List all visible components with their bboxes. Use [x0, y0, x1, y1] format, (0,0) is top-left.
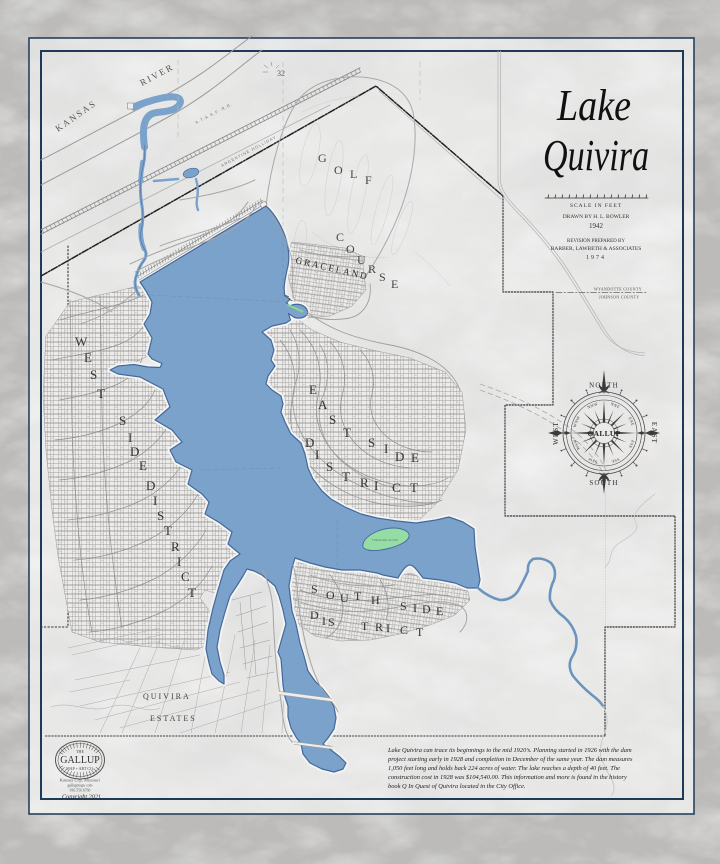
svg-text:O: O [346, 242, 355, 256]
svg-text:F: F [365, 173, 372, 187]
svg-text:E: E [411, 450, 419, 465]
svg-text:GALLUP: GALLUP [587, 429, 620, 438]
svg-text:REVISION PREPARED BY: REVISION PREPARED BY [567, 239, 625, 244]
svg-text:T: T [97, 386, 105, 401]
svg-text:T: T [342, 469, 350, 484]
svg-text:R: R [360, 475, 369, 490]
svg-text:T: T [343, 425, 351, 440]
svg-text:I: I [177, 554, 181, 569]
svg-text:S: S [311, 582, 318, 596]
svg-text:D: D [395, 449, 404, 464]
svg-text:SOUTH: SOUTH [589, 479, 618, 487]
svg-text:I: I [322, 614, 326, 628]
svg-text:C: C [400, 623, 408, 637]
svg-text:BARBER, LAWBETH & ASSOCIATES: BARBER, LAWBETH & ASSOCIATES [551, 246, 642, 252]
svg-text:E: E [309, 382, 317, 397]
svg-text:WEST: WEST [552, 421, 560, 445]
svg-text:S: S [326, 459, 333, 474]
svg-text:R: R [368, 262, 376, 276]
svg-text:32: 32 [277, 69, 285, 78]
svg-text:JOHNSON COUNTY: JOHNSON COUNTY [599, 296, 640, 300]
svg-text:MAP + ART CO.: MAP + ART CO. [66, 766, 94, 771]
svg-text:1,050 feet long and holds back: 1,050 feet long and holds back 224 acres… [388, 765, 620, 772]
svg-text:O: O [334, 163, 343, 177]
svg-text:T: T [354, 589, 362, 603]
svg-text:S: S [328, 615, 335, 629]
svg-text:E: E [84, 350, 92, 365]
svg-text:O: O [326, 588, 335, 602]
svg-text:T: T [410, 480, 418, 495]
svg-text:I: I [413, 601, 417, 615]
svg-text:W: W [75, 334, 88, 349]
svg-text:S: S [329, 412, 336, 427]
svg-text:S: S [119, 413, 126, 428]
svg-text:C: C [181, 569, 190, 584]
svg-text:gallupmaps.com: gallupmaps.com [68, 784, 93, 788]
svg-text:GALLUP: GALLUP [60, 755, 100, 766]
svg-text:U: U [357, 253, 366, 267]
svg-text:I: I [374, 478, 378, 493]
svg-text:I: I [153, 493, 157, 508]
svg-text:H: H [371, 593, 380, 607]
svg-text:E: E [139, 458, 147, 473]
svg-text:Lake: Lake [556, 81, 631, 130]
svg-text:QUIVIRA: QUIVIRA [143, 692, 191, 701]
svg-text:T: T [361, 619, 369, 633]
svg-text:S: S [90, 367, 97, 382]
svg-text:S: S [157, 508, 164, 523]
svg-text:project starting early in 1928: project starting early in 1928 and compl… [387, 756, 633, 763]
svg-text:1942: 1942 [589, 222, 604, 230]
svg-text:C: C [392, 480, 401, 495]
svg-text:I: I [128, 430, 132, 445]
svg-text:S: S [400, 599, 407, 613]
svg-text:construction cost in 1928 was: construction cost in 1928 was $104,540.0… [388, 774, 627, 781]
svg-text:DRAWN BY H. L. BOWLER: DRAWN BY H. L. BOWLER [563, 214, 630, 220]
svg-text:D: D [305, 435, 314, 450]
svg-text:I: I [315, 447, 319, 462]
svg-text:U: U [340, 591, 349, 605]
svg-text:816.556.6760: 816.556.6760 [70, 789, 91, 793]
svg-text:1974: 1974 [586, 255, 606, 261]
svg-text:WYANDOTTE COUNTY: WYANDOTTE COUNTY [594, 288, 642, 292]
svg-text:I: I [386, 621, 390, 635]
svg-text:Quivira: Quivira [543, 131, 649, 180]
svg-text:E: E [436, 604, 443, 618]
svg-text:R: R [375, 620, 383, 634]
svg-text:G: G [318, 151, 327, 165]
svg-text:D: D [130, 444, 139, 459]
svg-text:NORTH: NORTH [589, 382, 619, 390]
svg-text:C: C [336, 230, 344, 244]
svg-text:EAST: EAST [650, 422, 658, 444]
svg-text:Copyright 2021: Copyright 2021 [62, 794, 101, 801]
svg-text:T: T [416, 625, 424, 639]
svg-text:D: D [310, 608, 319, 622]
svg-text:T: T [188, 585, 196, 600]
svg-text:S: S [368, 435, 375, 450]
svg-text:T: T [164, 523, 172, 538]
svg-text:Lake Quivira can trace its beg: Lake Quivira can trace its beginnings to… [387, 747, 632, 754]
svg-text:THE: THE [76, 749, 84, 754]
svg-text:D: D [146, 478, 155, 493]
svg-text:D: D [422, 602, 431, 616]
svg-text:ESTATES: ESTATES [150, 714, 197, 723]
svg-text:I: I [384, 441, 388, 456]
svg-text:E: E [391, 277, 398, 291]
svg-text:TREASURE ISLAND: TREASURE ISLAND [372, 538, 398, 542]
svg-text:SCALE IN FEET: SCALE IN FEET [570, 203, 622, 209]
svg-text:L: L [350, 167, 357, 181]
svg-text:A: A [318, 397, 328, 412]
svg-text:book Q In Quest of Quivira loc: book Q In Quest of Quivira located in th… [388, 783, 526, 790]
svg-text:S: S [379, 270, 386, 284]
svg-text:R: R [171, 539, 180, 554]
